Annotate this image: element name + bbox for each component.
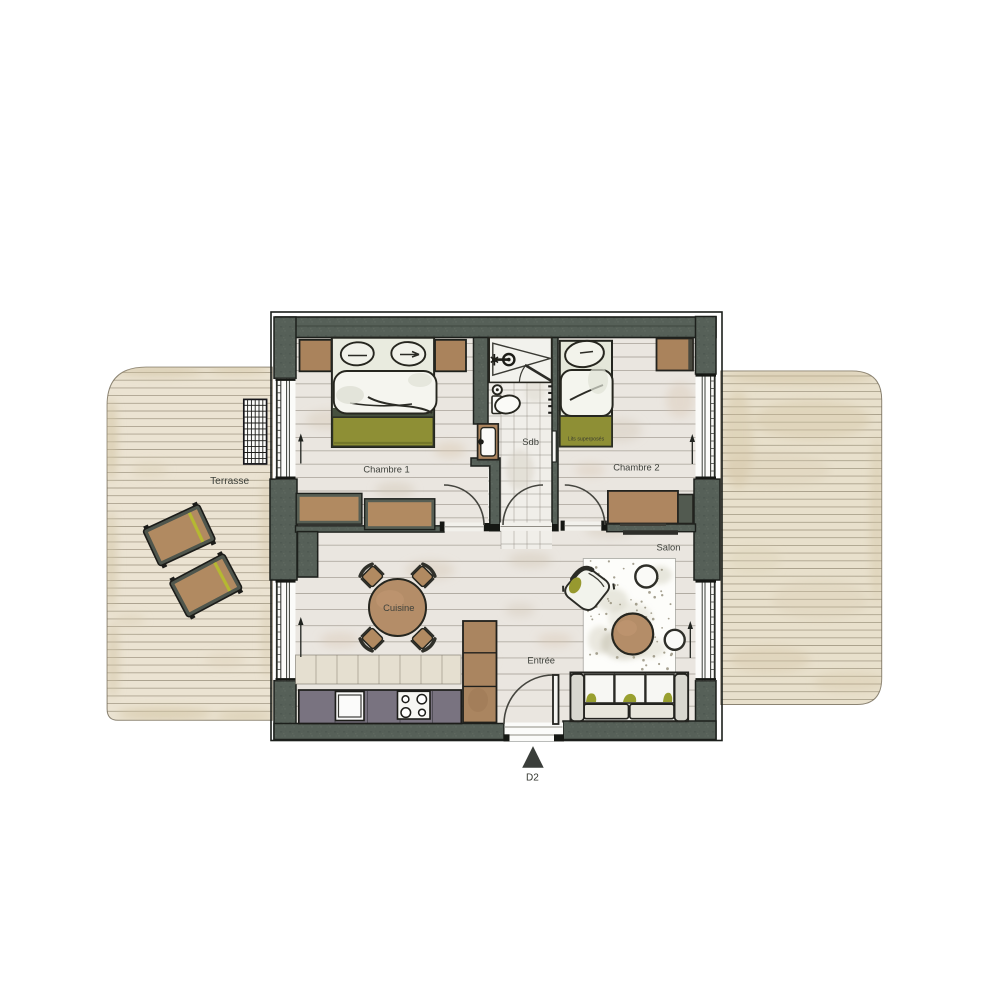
svg-text:Chambre 2: Chambre 2	[613, 461, 659, 472]
svg-text:D2: D2	[526, 773, 539, 784]
svg-text:Terrasse: Terrasse	[210, 476, 249, 487]
svg-text:Lits superposés: Lits superposés	[568, 436, 605, 442]
svg-text:Entrée: Entrée	[527, 655, 555, 666]
svg-text:Salon: Salon	[657, 541, 681, 552]
svg-text:Sdb: Sdb	[522, 436, 539, 447]
svg-text:Chambre 1: Chambre 1	[363, 463, 409, 474]
svg-text:Cuisine: Cuisine	[383, 602, 414, 613]
